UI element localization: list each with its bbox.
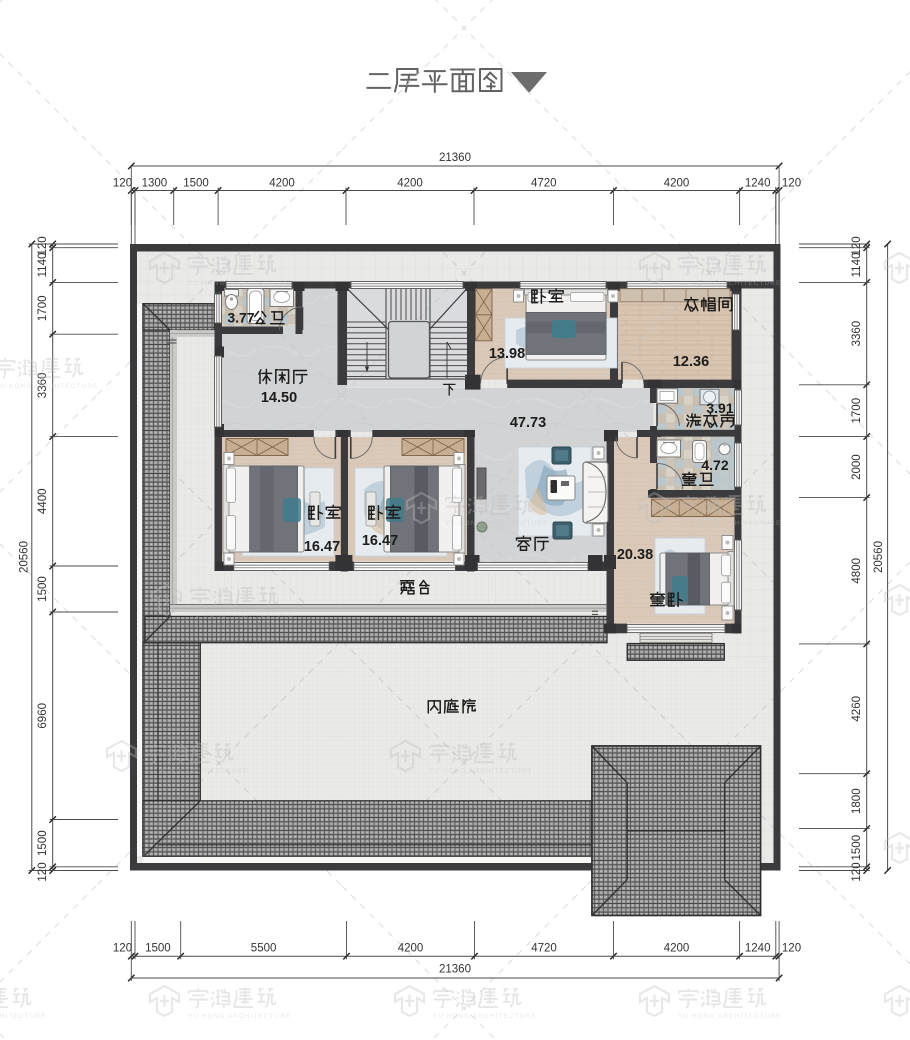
svg-text:16.47: 16.47: [304, 539, 340, 555]
svg-text:21360: 21360: [439, 152, 471, 164]
svg-text:1500: 1500: [851, 835, 863, 861]
svg-text:13.98: 13.98: [489, 346, 525, 362]
svg-text:1140: 1140: [37, 253, 49, 278]
svg-text:4800: 4800: [851, 558, 863, 584]
svg-text:47.73: 47.73: [510, 415, 546, 431]
svg-text:YU HONG ARCHITECTURE: YU HONG ARCHITECTURE: [188, 280, 291, 287]
svg-text:20560: 20560: [873, 541, 885, 573]
svg-text:YU HONG ARCHITECTURE: YU HONG ARCHITECTURE: [445, 520, 548, 527]
svg-text:4200: 4200: [397, 178, 423, 190]
svg-text:1500: 1500: [145, 943, 171, 955]
svg-text:YU HONG ARCHITECTURE: YU HONG ARCHITECTURE: [678, 1013, 781, 1020]
svg-text:1300: 1300: [142, 178, 168, 190]
svg-text:120: 120: [782, 943, 801, 955]
svg-text:1700: 1700: [37, 296, 49, 322]
svg-text:1700: 1700: [851, 398, 863, 424]
svg-text:120: 120: [37, 862, 49, 881]
svg-text:YU HONG ARCHITECTURE: YU HONG ARCHITECTURE: [0, 383, 98, 390]
svg-text:1500: 1500: [183, 178, 209, 190]
svg-text:4400: 4400: [37, 489, 49, 515]
svg-text:4260: 4260: [851, 696, 863, 722]
svg-text:YU HONG ARCHITECTURE: YU HONG ARCHITECTURE: [429, 768, 532, 775]
svg-text:1500: 1500: [37, 576, 49, 602]
svg-text:16.47: 16.47: [362, 533, 398, 549]
svg-text:YU HONG ARCHITECTURE: YU HONG ARCHITECTURE: [145, 768, 248, 775]
svg-text:YU HONG ARCHITECTURE: YU HONG ARCHITECTURE: [190, 612, 293, 619]
svg-text:YU HONG ARCHITECTURE: YU HONG ARCHITECTURE: [678, 520, 781, 527]
svg-text:YU HONG ARCHITECTURE: YU HONG ARCHITECTURE: [0, 1013, 46, 1020]
svg-text:YU HONG ARCHITECTURE: YU HONG ARCHITECTURE: [433, 1013, 536, 1020]
svg-text:1140: 1140: [851, 253, 863, 278]
svg-text:120: 120: [851, 236, 863, 255]
svg-text:120: 120: [113, 178, 132, 190]
svg-text:1500: 1500: [37, 830, 49, 856]
svg-text:2000: 2000: [851, 454, 863, 480]
svg-text:3360: 3360: [851, 321, 863, 347]
svg-text:1240: 1240: [745, 943, 771, 955]
svg-text:4.72: 4.72: [701, 457, 728, 473]
svg-text:YU HONG ARCHITECTURE: YU HONG ARCHITECTURE: [678, 280, 781, 287]
svg-text:20560: 20560: [19, 541, 31, 573]
svg-text:4200: 4200: [398, 943, 424, 955]
svg-text:14.50: 14.50: [261, 390, 297, 406]
svg-text:4200: 4200: [664, 178, 690, 190]
svg-text:120: 120: [37, 236, 49, 255]
svg-text:1800: 1800: [851, 788, 863, 814]
svg-text:5500: 5500: [251, 943, 277, 955]
svg-text:12.36: 12.36: [673, 354, 709, 370]
svg-text:1240: 1240: [745, 178, 771, 190]
svg-text:YU HONG ARCHITECTURE: YU HONG ARCHITECTURE: [188, 1013, 291, 1020]
svg-text:120: 120: [851, 862, 863, 881]
svg-text:6960: 6960: [37, 703, 49, 729]
svg-text:4720: 4720: [531, 178, 557, 190]
svg-text:3.77: 3.77: [227, 310, 254, 326]
svg-text:21360: 21360: [439, 964, 471, 976]
svg-text:120: 120: [782, 178, 801, 190]
svg-text:20.38: 20.38: [617, 547, 653, 563]
svg-text:120: 120: [113, 943, 132, 955]
svg-text:4200: 4200: [269, 178, 295, 190]
svg-text:4720: 4720: [531, 943, 557, 955]
svg-text:4200: 4200: [664, 943, 690, 955]
